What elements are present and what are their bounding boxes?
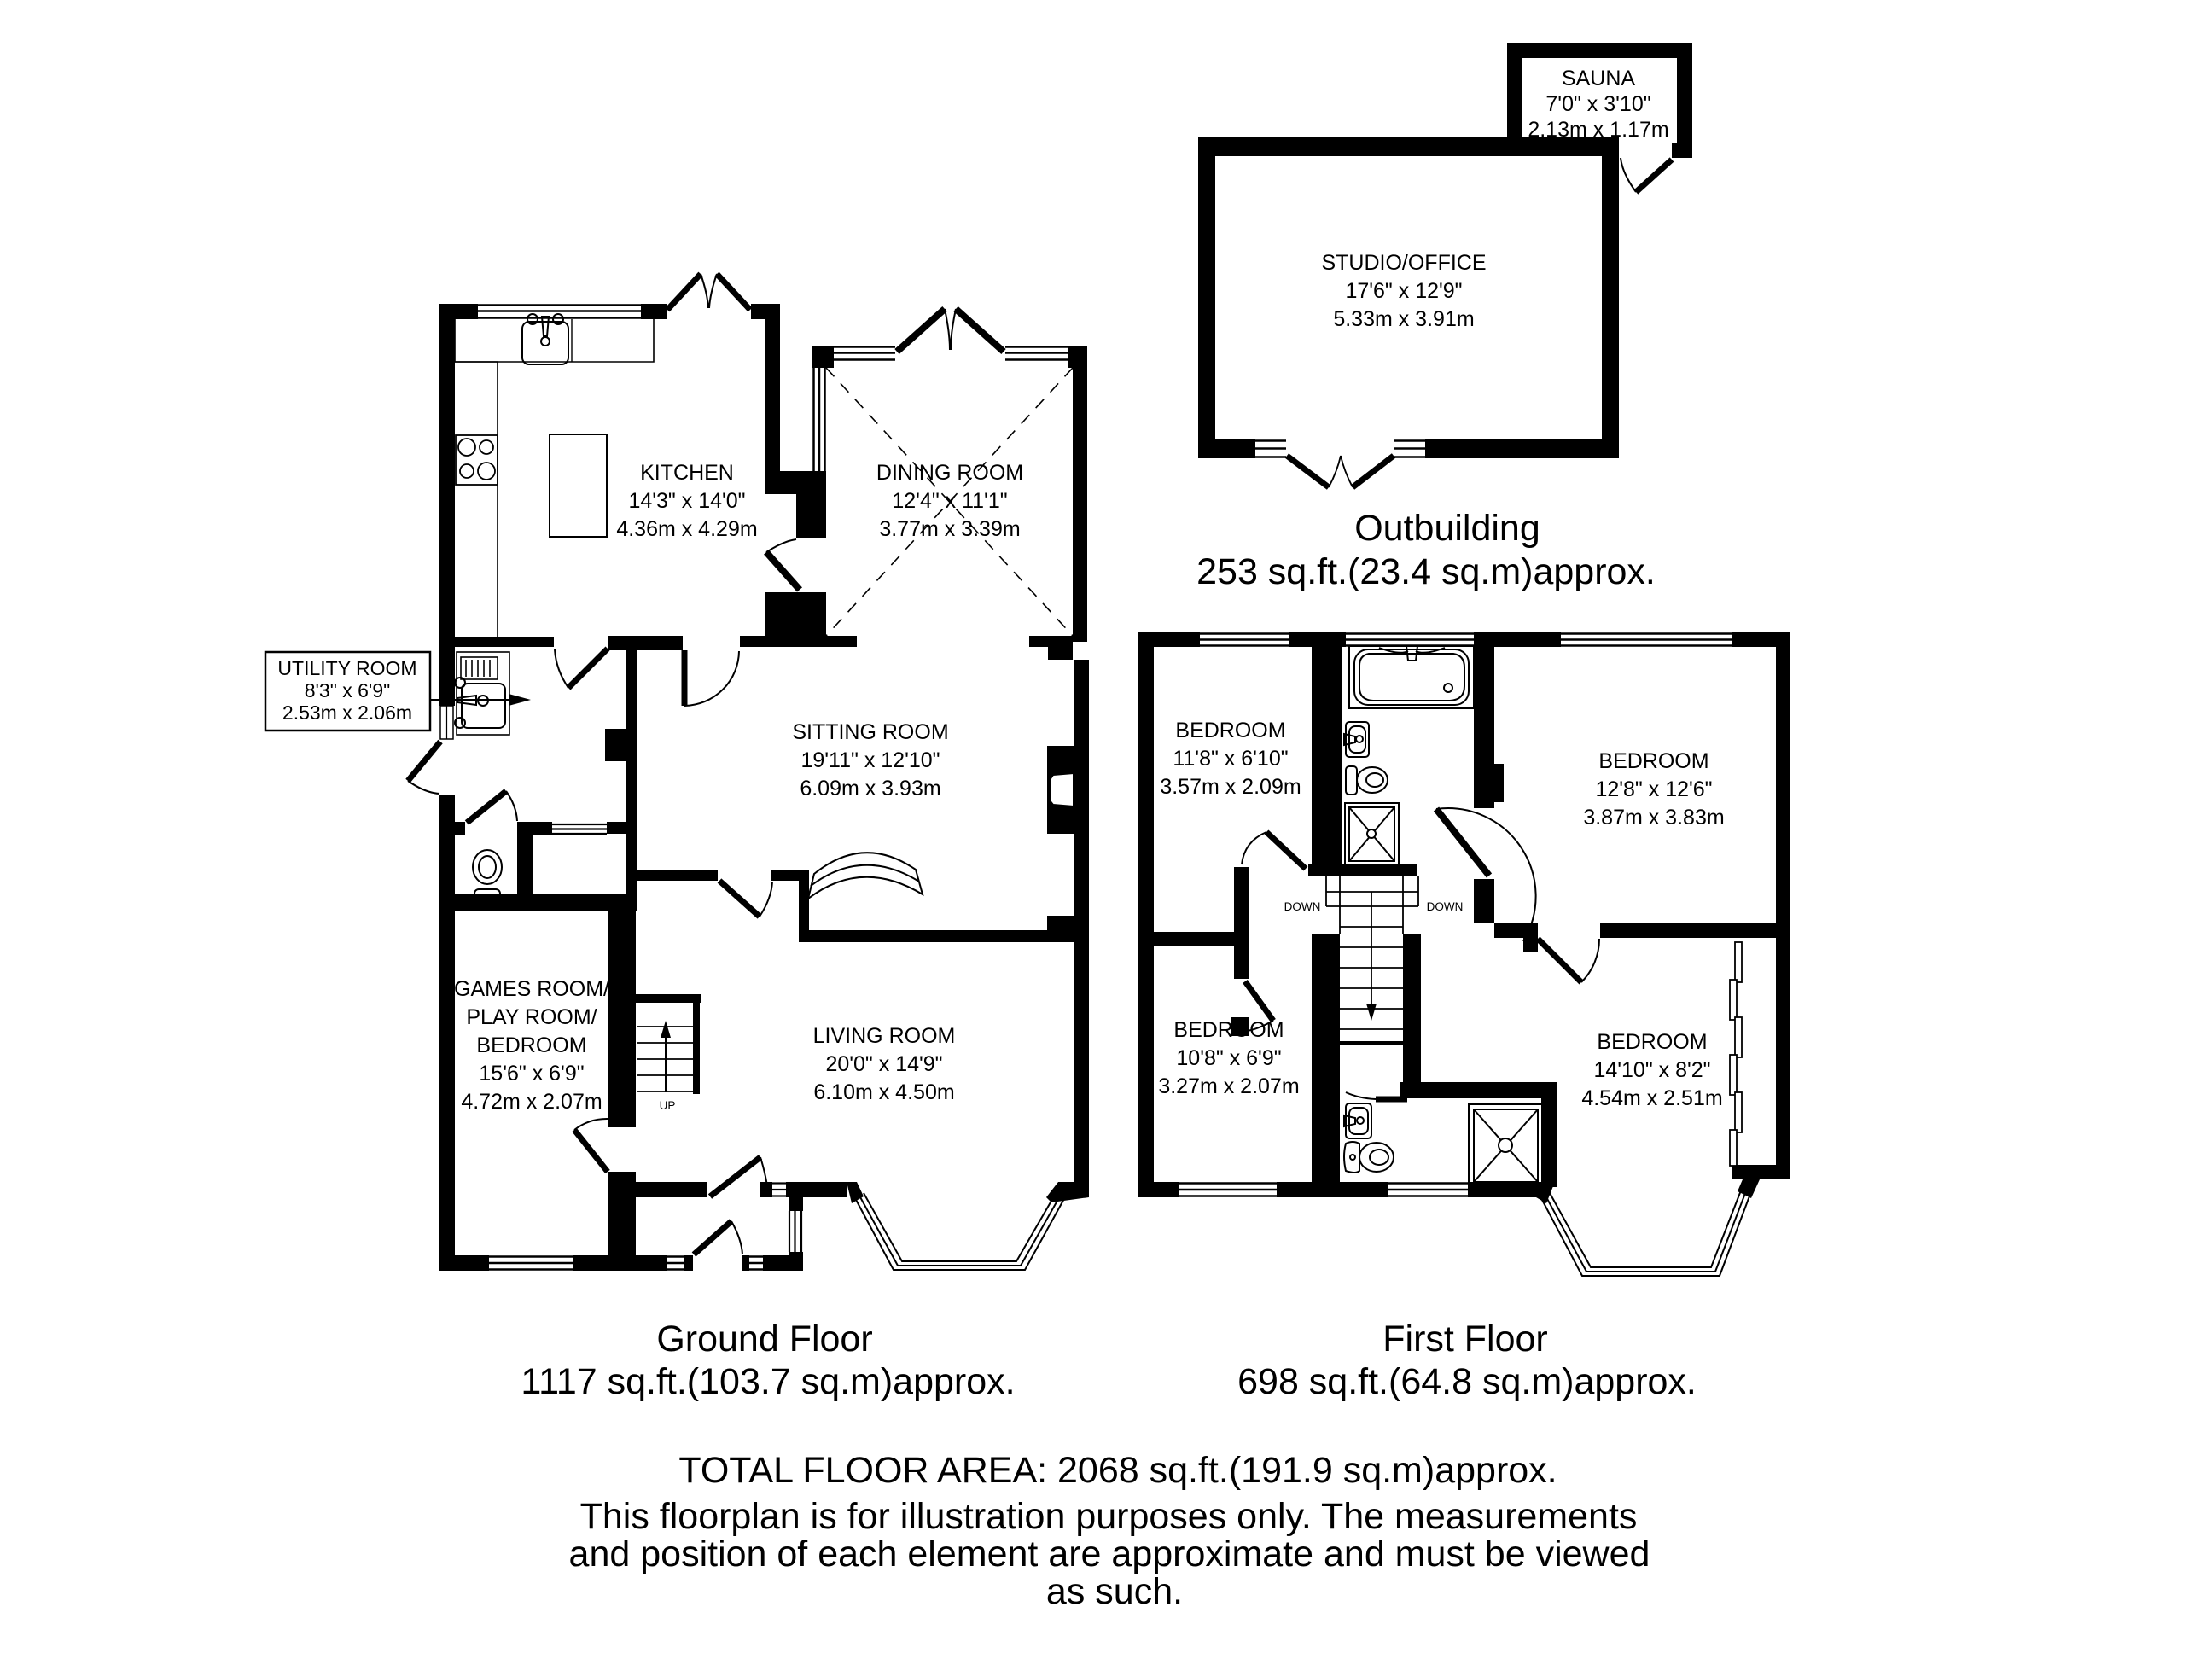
- svg-text:4.54m x 2.51m: 4.54m x 2.51m: [1581, 1086, 1722, 1110]
- svg-text:DINING ROOM: DINING ROOM: [876, 461, 1023, 485]
- svg-text:698 sq.ft.(64.8 sq.m)approx.: 698 sq.ft.(64.8 sq.m)approx.: [1237, 1361, 1697, 1402]
- svg-text:3.27m x 2.07m: 3.27m x 2.07m: [1158, 1074, 1299, 1098]
- svg-text:as such.: as such.: [1046, 1571, 1183, 1612]
- svg-text:and position of each element a: and position of each element are approxi…: [569, 1534, 1650, 1575]
- svg-text:3.77m x 3.39m: 3.77m x 3.39m: [879, 517, 1020, 541]
- svg-text:253 sq.ft.(23.4 sq.m)approx.: 253 sq.ft.(23.4 sq.m)approx.: [1196, 551, 1656, 592]
- svg-text:BEDROOM: BEDROOM: [1175, 719, 1285, 742]
- svg-text:First Floor: First Floor: [1382, 1318, 1548, 1359]
- svg-text:PLAY ROOM/: PLAY ROOM/: [466, 1005, 597, 1029]
- svg-text:UP: UP: [660, 1099, 676, 1112]
- svg-text:17'6" x 12'9": 17'6" x 12'9": [1345, 279, 1462, 303]
- svg-text:BEDROOM: BEDROOM: [476, 1033, 586, 1057]
- svg-text:4.72m x 2.07m: 4.72m x 2.07m: [461, 1090, 602, 1114]
- svg-text:This floorplan is for illustra: This floorplan is for illustration purpo…: [580, 1496, 1638, 1537]
- svg-text:SAUNA: SAUNA: [1562, 67, 1635, 90]
- svg-text:DOWN: DOWN: [1427, 900, 1464, 913]
- svg-text:10'8" x 6'9": 10'8" x 6'9": [1176, 1046, 1281, 1070]
- svg-text:TOTAL FLOOR AREA: 2068 sq.ft.(: TOTAL FLOOR AREA: 2068 sq.ft.(191.9 sq.m…: [678, 1450, 1557, 1491]
- svg-text:BEDROOM: BEDROOM: [1597, 1030, 1707, 1054]
- svg-text:6.09m x 3.93m: 6.09m x 3.93m: [800, 777, 940, 800]
- svg-text:14'10" x 8'2": 14'10" x 8'2": [1593, 1058, 1710, 1082]
- svg-text:12'8" x 12'6": 12'8" x 12'6": [1595, 777, 1712, 801]
- svg-text:7'0" x 3'10": 7'0" x 3'10": [1545, 92, 1650, 116]
- svg-text:5.33m x 3.91m: 5.33m x 3.91m: [1333, 307, 1474, 331]
- svg-text:3.87m x 3.83m: 3.87m x 3.83m: [1583, 806, 1724, 829]
- svg-text:11'8" x 6'10": 11'8" x 6'10": [1173, 747, 1288, 771]
- svg-text:UTILITY ROOM: UTILITY ROOM: [277, 657, 416, 679]
- svg-text:4.36m x 4.29m: 4.36m x 4.29m: [616, 517, 757, 541]
- svg-text:20'0" x 14'9": 20'0" x 14'9": [825, 1052, 942, 1076]
- svg-text:DOWN: DOWN: [1284, 900, 1321, 913]
- svg-text:KITCHEN: KITCHEN: [640, 461, 734, 485]
- svg-text:BEDROOM: BEDROOM: [1173, 1018, 1284, 1042]
- svg-text:LIVING ROOM: LIVING ROOM: [813, 1024, 956, 1048]
- svg-text:8'3" x 6'9": 8'3" x 6'9": [305, 679, 391, 701]
- svg-text:GAMES ROOM/: GAMES ROOM/: [454, 977, 609, 1001]
- svg-text:15'6" x 6'9": 15'6" x 6'9": [479, 1062, 584, 1086]
- svg-text:1117 sq.ft.(103.7 sq.m)approx.: 1117 sq.ft.(103.7 sq.m)approx.: [521, 1361, 1015, 1402]
- svg-text:6.10m x 4.50m: 6.10m x 4.50m: [813, 1080, 954, 1104]
- svg-text:STUDIO/OFFICE: STUDIO/OFFICE: [1321, 251, 1486, 275]
- svg-text:2.13m x 1.17m: 2.13m x 1.17m: [1528, 118, 1668, 142]
- svg-text:3.57m x 2.09m: 3.57m x 2.09m: [1160, 775, 1301, 799]
- svg-text:SITTING ROOM: SITTING ROOM: [792, 720, 948, 744]
- svg-text:19'11" x 12'10": 19'11" x 12'10": [800, 748, 940, 772]
- svg-text:14'3" x 14'0": 14'3" x 14'0": [628, 489, 745, 513]
- svg-text:Ground Floor: Ground Floor: [656, 1318, 872, 1359]
- svg-text:Outbuilding: Outbuilding: [1354, 508, 1540, 549]
- svg-text:BEDROOM: BEDROOM: [1598, 749, 1708, 773]
- svg-text:2.53m x 2.06m: 2.53m x 2.06m: [282, 701, 412, 724]
- svg-text:12'4" x 11'1": 12'4" x 11'1": [892, 489, 1007, 513]
